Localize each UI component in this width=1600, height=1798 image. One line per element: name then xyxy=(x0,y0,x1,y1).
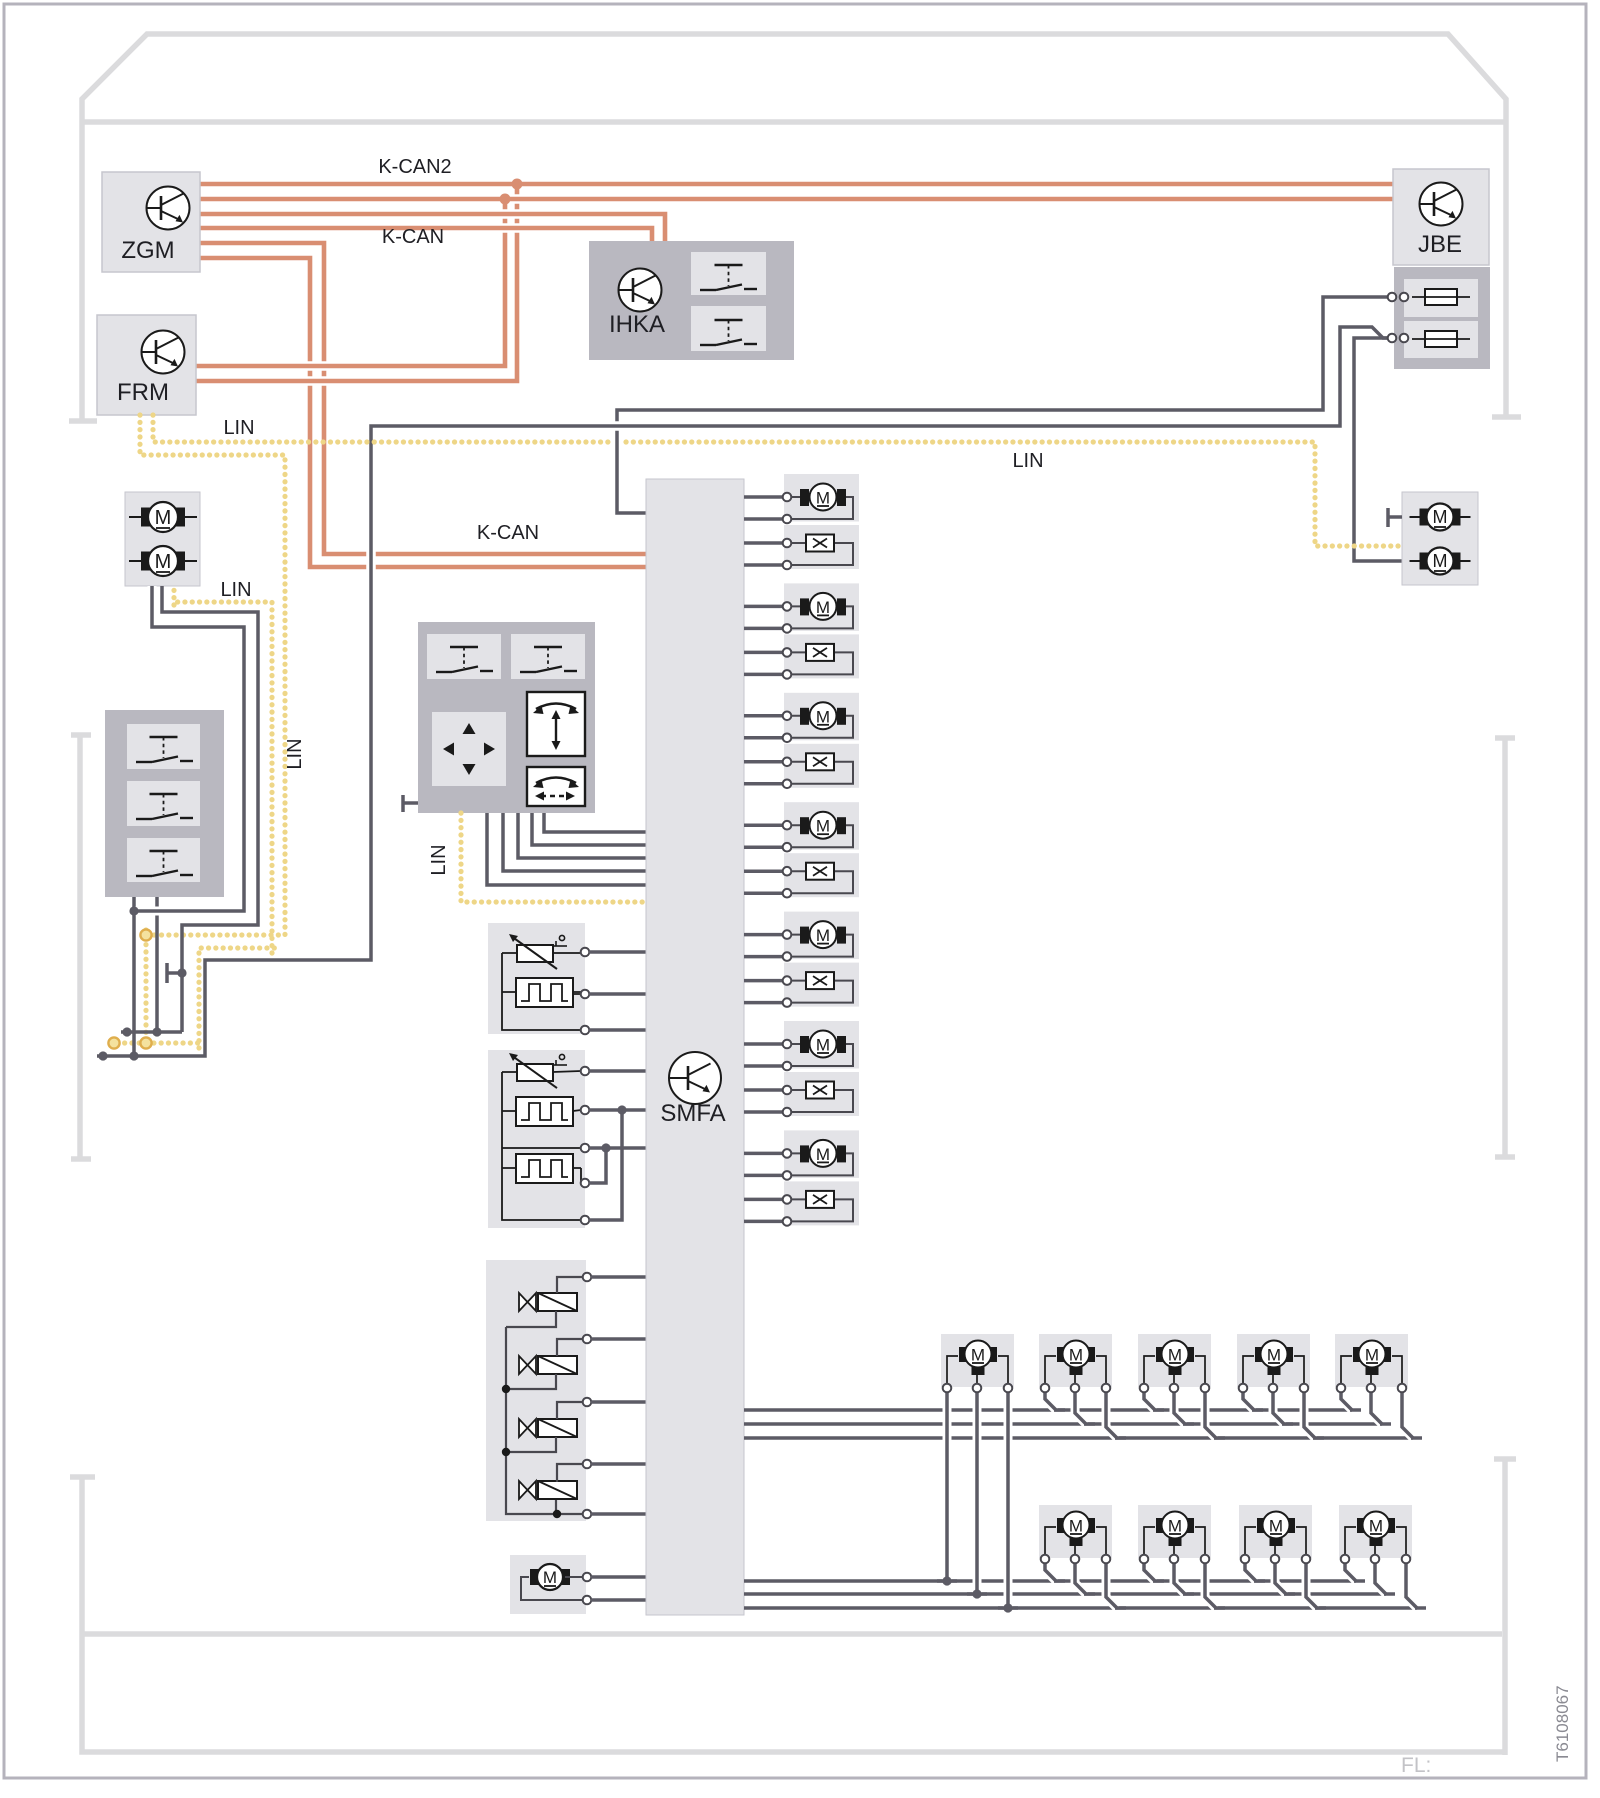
svg-text:M: M xyxy=(1433,551,1448,571)
svg-text:T6108067: T6108067 xyxy=(1553,1685,1572,1762)
svg-text:M: M xyxy=(971,1346,985,1365)
svg-text:M: M xyxy=(816,707,830,726)
svg-text:M: M xyxy=(543,1568,557,1587)
svg-text:M: M xyxy=(1069,1346,1083,1365)
svg-text:M: M xyxy=(1365,1346,1379,1365)
svg-text:LIN: LIN xyxy=(1012,450,1043,472)
svg-text:M: M xyxy=(1433,507,1448,527)
svg-text:LIN: LIN xyxy=(284,738,306,769)
svg-text:M: M xyxy=(1168,1517,1182,1536)
svg-text:JBE: JBE xyxy=(1418,231,1462,258)
svg-text:M: M xyxy=(816,489,830,508)
svg-text:M: M xyxy=(816,817,830,836)
svg-text:SMFA: SMFA xyxy=(660,1100,725,1127)
svg-text:M: M xyxy=(1168,1346,1182,1365)
svg-text:M: M xyxy=(1267,1346,1281,1365)
svg-text:LIN: LIN xyxy=(220,579,251,601)
svg-text:FL:: FL: xyxy=(1401,1754,1431,1777)
svg-text:M: M xyxy=(1369,1517,1383,1536)
svg-text:LIN: LIN xyxy=(223,417,254,439)
svg-text:M: M xyxy=(155,551,172,573)
svg-text:M: M xyxy=(816,1145,830,1164)
svg-text:K-CAN: K-CAN xyxy=(382,226,444,248)
svg-text:M: M xyxy=(1269,1517,1283,1536)
svg-text:IHKA: IHKA xyxy=(609,311,665,338)
svg-text:M: M xyxy=(816,1036,830,1055)
svg-text:K-CAN: K-CAN xyxy=(477,522,539,544)
svg-text:M: M xyxy=(155,507,172,529)
svg-text:M: M xyxy=(816,926,830,945)
svg-text:LIN: LIN xyxy=(428,844,450,875)
svg-text:K-CAN2: K-CAN2 xyxy=(378,156,451,178)
svg-text:ZGM: ZGM xyxy=(121,237,174,264)
svg-text:M: M xyxy=(816,598,830,617)
svg-text:M: M xyxy=(1069,1517,1083,1536)
svg-text:FRM: FRM xyxy=(117,379,169,406)
